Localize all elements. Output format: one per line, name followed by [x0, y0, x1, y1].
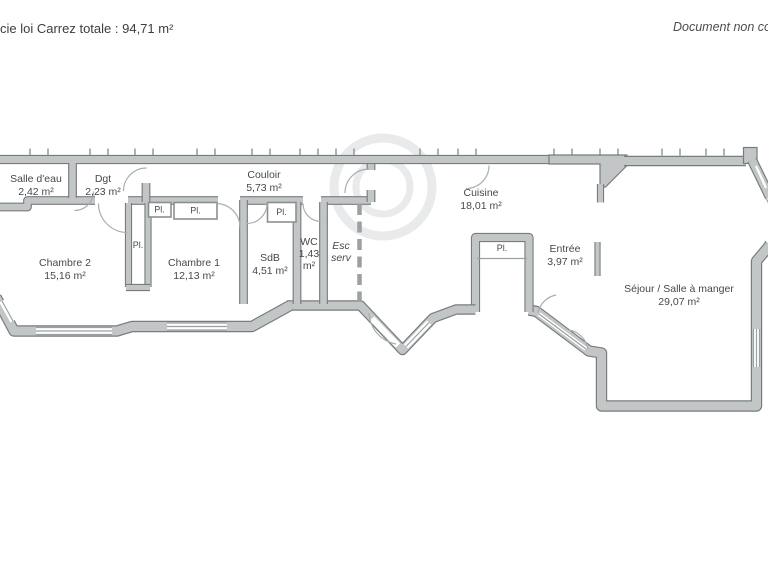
wall-wedge: [549, 155, 627, 187]
closet-label: Pl.: [190, 206, 201, 216]
closet-label: Pl.: [497, 243, 508, 253]
document-disclaimer-text: Document non con: [673, 20, 768, 34]
room-label-cuisine: Cuisine: [463, 187, 498, 199]
room-label-esc-serv-2: serv: [331, 252, 352, 264]
closets: [149, 203, 297, 223]
room-label-salle-deau: Salle d'eau: [10, 173, 62, 185]
carrez-area-text: cie loi Carrez totale : 94,71 m²: [0, 21, 174, 36]
room-area-sdb: 4,51 m²: [252, 265, 288, 277]
room-area-chambre1: 12,13 m²: [173, 270, 215, 282]
room-area-cuisine: 18,01 m²: [460, 200, 502, 212]
room-area-entree: 3,97 m²: [547, 256, 583, 268]
room-area-wc-unit: m²: [303, 260, 316, 272]
room-area-chambre2: 15,16 m²: [44, 270, 86, 282]
window: [753, 329, 760, 367]
watermark: [334, 138, 432, 236]
room-area-salle-deau: 2,42 m²: [18, 186, 54, 198]
room-label-sdb: SdB: [260, 252, 280, 264]
room-label-dgt: Dgt: [95, 173, 111, 185]
floorplan-page: cie loi Carrez totale : 94,71 m² Documen…: [0, 0, 768, 576]
room-label-sejour: Séjour / Salle à manger: [624, 283, 734, 295]
room-label-chambre1: Chambre 1: [168, 257, 220, 269]
room-area-sejour: 29,07 m²: [658, 296, 700, 308]
room-area-dgt: 2,23 m²: [85, 186, 121, 198]
closet-label: Pl.: [133, 240, 144, 250]
room-label-entree: Entrée: [550, 243, 581, 255]
room-label-wc: WC: [300, 236, 318, 248]
closet-label: Pl.: [154, 205, 165, 215]
room-area-couloir: 5,73 m²: [246, 182, 282, 194]
floorplan-drawing: cie loi Carrez totale : 94,71 m² Documen…: [0, 0, 768, 576]
closet-label: Pl.: [276, 207, 287, 217]
room-area-wc-value: 1,43: [299, 248, 320, 260]
room-label-esc-serv-1: Esc: [332, 240, 350, 252]
room-label-chambre2: Chambre 2: [39, 257, 91, 269]
room-label-couloir: Couloir: [247, 169, 281, 181]
